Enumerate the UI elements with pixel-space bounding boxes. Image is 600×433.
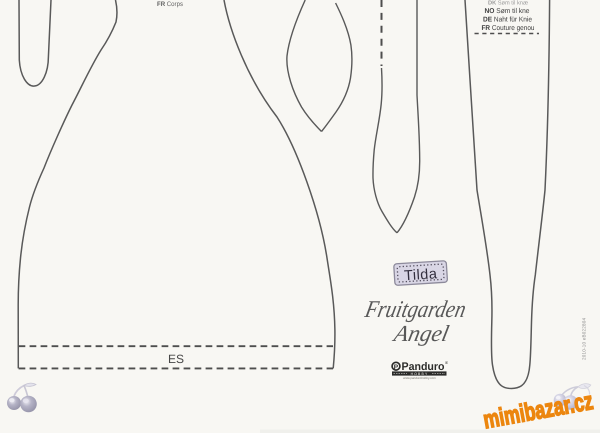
svg-text:NO Søm til kne: NO Søm til kne (485, 7, 530, 15)
svg-text:®: ® (445, 360, 448, 365)
svg-text:Angel: Angel (390, 321, 451, 346)
svg-text:Fruitgarden: Fruitgarden (362, 297, 468, 323)
svg-text:ES: ES (168, 352, 184, 366)
svg-text:www.pandurohobby.com: www.pandurohobby.com (403, 376, 436, 380)
svg-text:FR Corps: FR Corps (157, 1, 184, 8)
svg-text:P: P (394, 364, 399, 371)
svg-text:Tilda: Tilda (404, 266, 439, 284)
svg-text:2010-10 eB022804: 2010-10 eB022804 (582, 317, 587, 360)
svg-text:FR Couture genou: FR Couture genou (482, 25, 535, 32)
svg-text:DE Naht für Knie: DE Naht für Knie (483, 16, 532, 24)
svg-text:DK Søm til knæ: DK Søm til knæ (488, 0, 528, 7)
